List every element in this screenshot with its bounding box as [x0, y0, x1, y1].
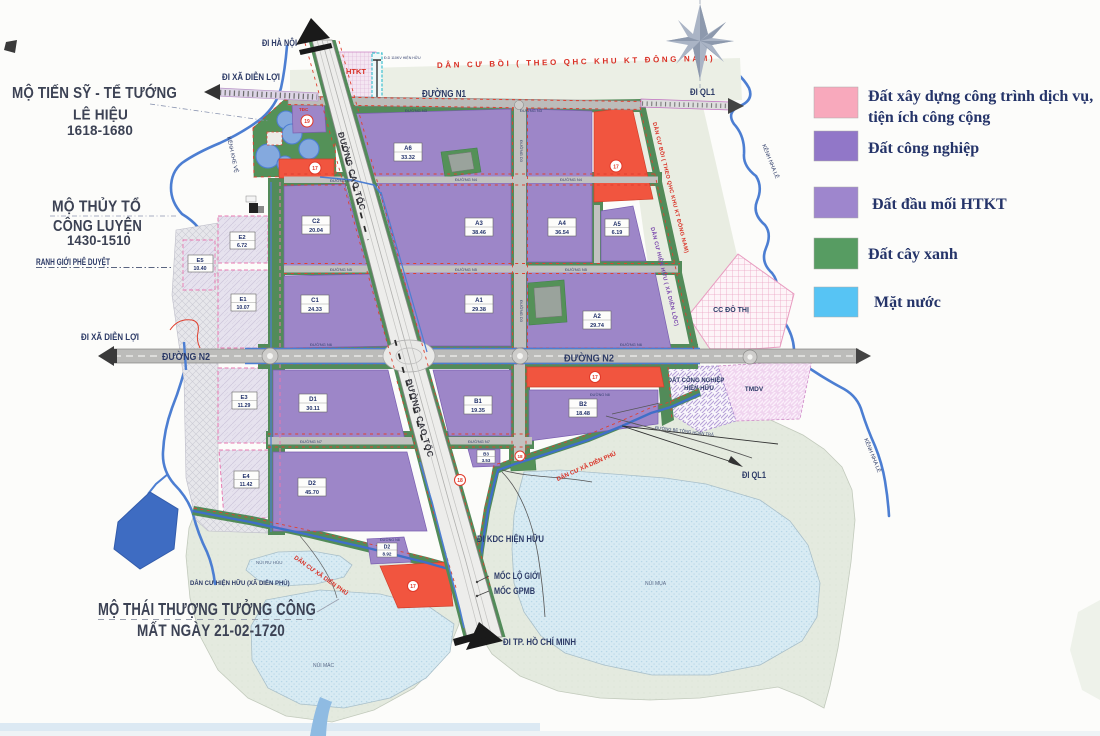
svg-text:ĐƯỜNG N2: ĐƯỜNG N2	[564, 352, 614, 365]
svg-text:19: 19	[304, 119, 310, 125]
svg-text:10.07: 10.07	[237, 305, 250, 311]
svg-text:MỐC GPMB: MỐC GPMB	[494, 585, 535, 596]
svg-text:6.19: 6.19	[612, 230, 623, 236]
svg-text:E3: E3	[240, 395, 248, 401]
svg-text:Mặt nước: Mặt nước	[874, 294, 941, 311]
svg-text:NÚI MỤA: NÚI MỤA	[645, 580, 667, 587]
svg-text:17: 17	[613, 164, 619, 170]
svg-text:ĐƯỜNG N8: ĐƯỜNG N8	[590, 392, 610, 397]
svg-text:E5: E5	[196, 258, 204, 264]
svg-text:Đất công nghiệp: Đất công nghiệp	[868, 140, 979, 157]
svg-text:ĐƯỜNG N3: ĐƯỜNG N3	[405, 108, 428, 113]
svg-text:ĐI QL1: ĐI QL1	[742, 470, 766, 480]
svg-text:A5: A5	[613, 222, 621, 228]
svg-text:MẤT NGÀY 21-02-1720: MẤT NGÀY 21-02-1720	[137, 621, 285, 640]
svg-text:ĐƯỜNG N7: ĐƯỜNG N7	[300, 439, 323, 444]
svg-text:NÚI RU HÙU: NÚI RU HÙU	[256, 559, 283, 565]
svg-text:B1: B1	[474, 399, 482, 405]
svg-text:17: 17	[312, 166, 318, 172]
svg-text:B2: B2	[579, 402, 587, 408]
svg-text:45.70: 45.70	[305, 490, 319, 496]
svg-text:17: 17	[592, 375, 598, 381]
svg-text:ĐƯỜNG N1: ĐƯỜNG N1	[422, 87, 466, 100]
svg-text:30.11: 30.11	[306, 406, 319, 412]
svg-text:MỘ TIẾN SỸ - TỂ TƯỚNG: MỘ TIẾN SỸ - TỂ TƯỚNG	[12, 84, 177, 102]
svg-text:ĐƯỜNG N7: ĐƯỜNG N7	[468, 439, 491, 444]
svg-text:ĐƯỜNG D3: ĐƯỜNG D3	[519, 300, 524, 323]
svg-text:8.92: 8.92	[383, 552, 392, 557]
svg-text:A6: A6	[404, 146, 412, 152]
svg-text:Đất đầu mối HTKT: Đất đầu mối HTKT	[872, 196, 1007, 213]
svg-text:B3: B3	[483, 452, 489, 457]
svg-text:ĐƯỜNG D3: ĐƯỜNG D3	[519, 140, 524, 163]
svg-text:Đ.D 110KV HIỆN HỮU: Đ.D 110KV HIỆN HỮU	[384, 55, 421, 60]
svg-text:11.42: 11.42	[240, 482, 253, 488]
svg-text:18.48: 18.48	[576, 411, 590, 417]
svg-text:ĐI TP. HỒ CHÍ MINH: ĐI TP. HỒ CHÍ MINH	[503, 636, 576, 648]
svg-text:38.46: 38.46	[472, 230, 486, 236]
svg-text:ĐI KDC HIỆN HỮU: ĐI KDC HIỆN HỮU	[477, 533, 544, 545]
svg-text:1430-1510: 1430-1510	[67, 232, 131, 248]
svg-text:ĐI HÀ NỘI: ĐI HÀ NỘI	[262, 37, 297, 49]
svg-text:E4: E4	[242, 474, 250, 480]
svg-text:E2: E2	[238, 235, 245, 241]
svg-text:ĐƯỜNG N3: ĐƯỜNG N3	[520, 108, 543, 113]
svg-text:D2: D2	[384, 545, 391, 551]
svg-text:ĐƯỜNG N4: ĐƯỜNG N4	[455, 177, 478, 182]
svg-text:ĐƯỜNG N5: ĐƯỜNG N5	[565, 267, 588, 272]
svg-text:1618-1680: 1618-1680	[67, 122, 133, 138]
svg-text:Đất xây dựng công trình dịch v: Đất xây dựng công trình dịch vụ,	[868, 88, 1093, 105]
svg-text:E1: E1	[239, 297, 247, 303]
svg-text:HTKT: HTKT	[346, 67, 366, 76]
svg-text:D2: D2	[308, 481, 316, 487]
svg-text:tiện ích công cộng: tiện ích công cộng	[868, 109, 990, 126]
svg-text:29.74: 29.74	[590, 323, 605, 329]
svg-text:A2: A2	[593, 314, 601, 320]
svg-text:ĐƯỜNG N4: ĐƯỜNG N4	[560, 177, 583, 182]
svg-text:D1: D1	[309, 397, 317, 403]
svg-text:A3: A3	[475, 221, 483, 227]
svg-text:ĐƯỜNG N2: ĐƯỜNG N2	[162, 350, 210, 363]
svg-text:17: 17	[410, 584, 416, 590]
svg-text:20.04: 20.04	[309, 228, 324, 234]
svg-text:DÂN CƯ HIỆN HỮU (XÃ DIỄN PHÚ): DÂN CƯ HIỆN HỮU (XÃ DIỄN PHÚ)	[190, 579, 290, 587]
svg-text:18: 18	[457, 478, 463, 484]
svg-text:C2: C2	[312, 219, 320, 225]
svg-text:MỘ THÁI THƯỢNG TƯỞNG CÔNG: MỘ THÁI THƯỢNG TƯỞNG CÔNG	[98, 598, 316, 619]
svg-text:ĐƯỜNG N4: ĐƯỜNG N4	[330, 178, 353, 183]
svg-text:RANH GIỚI PHÊ DUYỆT: RANH GIỚI PHÊ DUYỆT	[36, 256, 110, 267]
svg-text:MỐC LỘ GIỚI: MỐC LỘ GIỚI	[494, 570, 540, 581]
svg-text:LÊ HIỆU: LÊ HIỆU	[73, 106, 128, 124]
svg-text:11.29: 11.29	[238, 403, 251, 409]
svg-text:TMDV: TMDV	[745, 386, 764, 393]
svg-text:Đất cây xanh: Đất cây xanh	[868, 246, 958, 263]
svg-text:10.40: 10.40	[194, 266, 207, 272]
svg-text:ĐI XÃ DIỄN LỢI: ĐI XÃ DIỄN LỢI	[222, 71, 280, 83]
svg-text:ĐƯỜNG N5: ĐƯỜNG N5	[330, 267, 353, 272]
svg-text:TĐC: TĐC	[299, 107, 309, 112]
svg-text:C1: C1	[311, 298, 319, 304]
svg-text:24.33: 24.33	[308, 307, 322, 313]
svg-text:ĐƯỜNG N6: ĐƯỜNG N6	[620, 342, 643, 347]
svg-text:CC ĐÔ THỊ: CC ĐÔ THỊ	[713, 305, 749, 314]
svg-text:ĐI QL1: ĐI QL1	[690, 87, 715, 97]
svg-text:33.32: 33.32	[401, 155, 415, 161]
svg-text:19.35: 19.35	[471, 408, 485, 414]
svg-text:A4: A4	[558, 221, 566, 227]
svg-text:ĐẤT CÔNG NGHIỆP: ĐẤT CÔNG NGHIỆP	[668, 376, 725, 384]
svg-text:ĐI XÃ DIỄN LỢI: ĐI XÃ DIỄN LỢI	[81, 331, 139, 343]
svg-text:18: 18	[517, 454, 523, 459]
svg-text:36.54: 36.54	[555, 230, 570, 236]
svg-text:ĐƯỜNG N8: ĐƯỜNG N8	[380, 537, 400, 542]
svg-text:29.38: 29.38	[472, 307, 486, 313]
svg-text:6.72: 6.72	[237, 243, 247, 249]
svg-text:ĐƯỜNG N5: ĐƯỜNG N5	[455, 267, 478, 272]
svg-text:MỘ THỦY TỔ: MỘ THỦY TỔ	[52, 197, 141, 216]
svg-text:A1: A1	[475, 298, 483, 304]
svg-text:3.53: 3.53	[482, 458, 491, 463]
svg-text:ĐƯỜNG N6: ĐƯỜNG N6	[310, 342, 333, 347]
svg-text:NÚI MÁC: NÚI MÁC	[313, 662, 335, 669]
